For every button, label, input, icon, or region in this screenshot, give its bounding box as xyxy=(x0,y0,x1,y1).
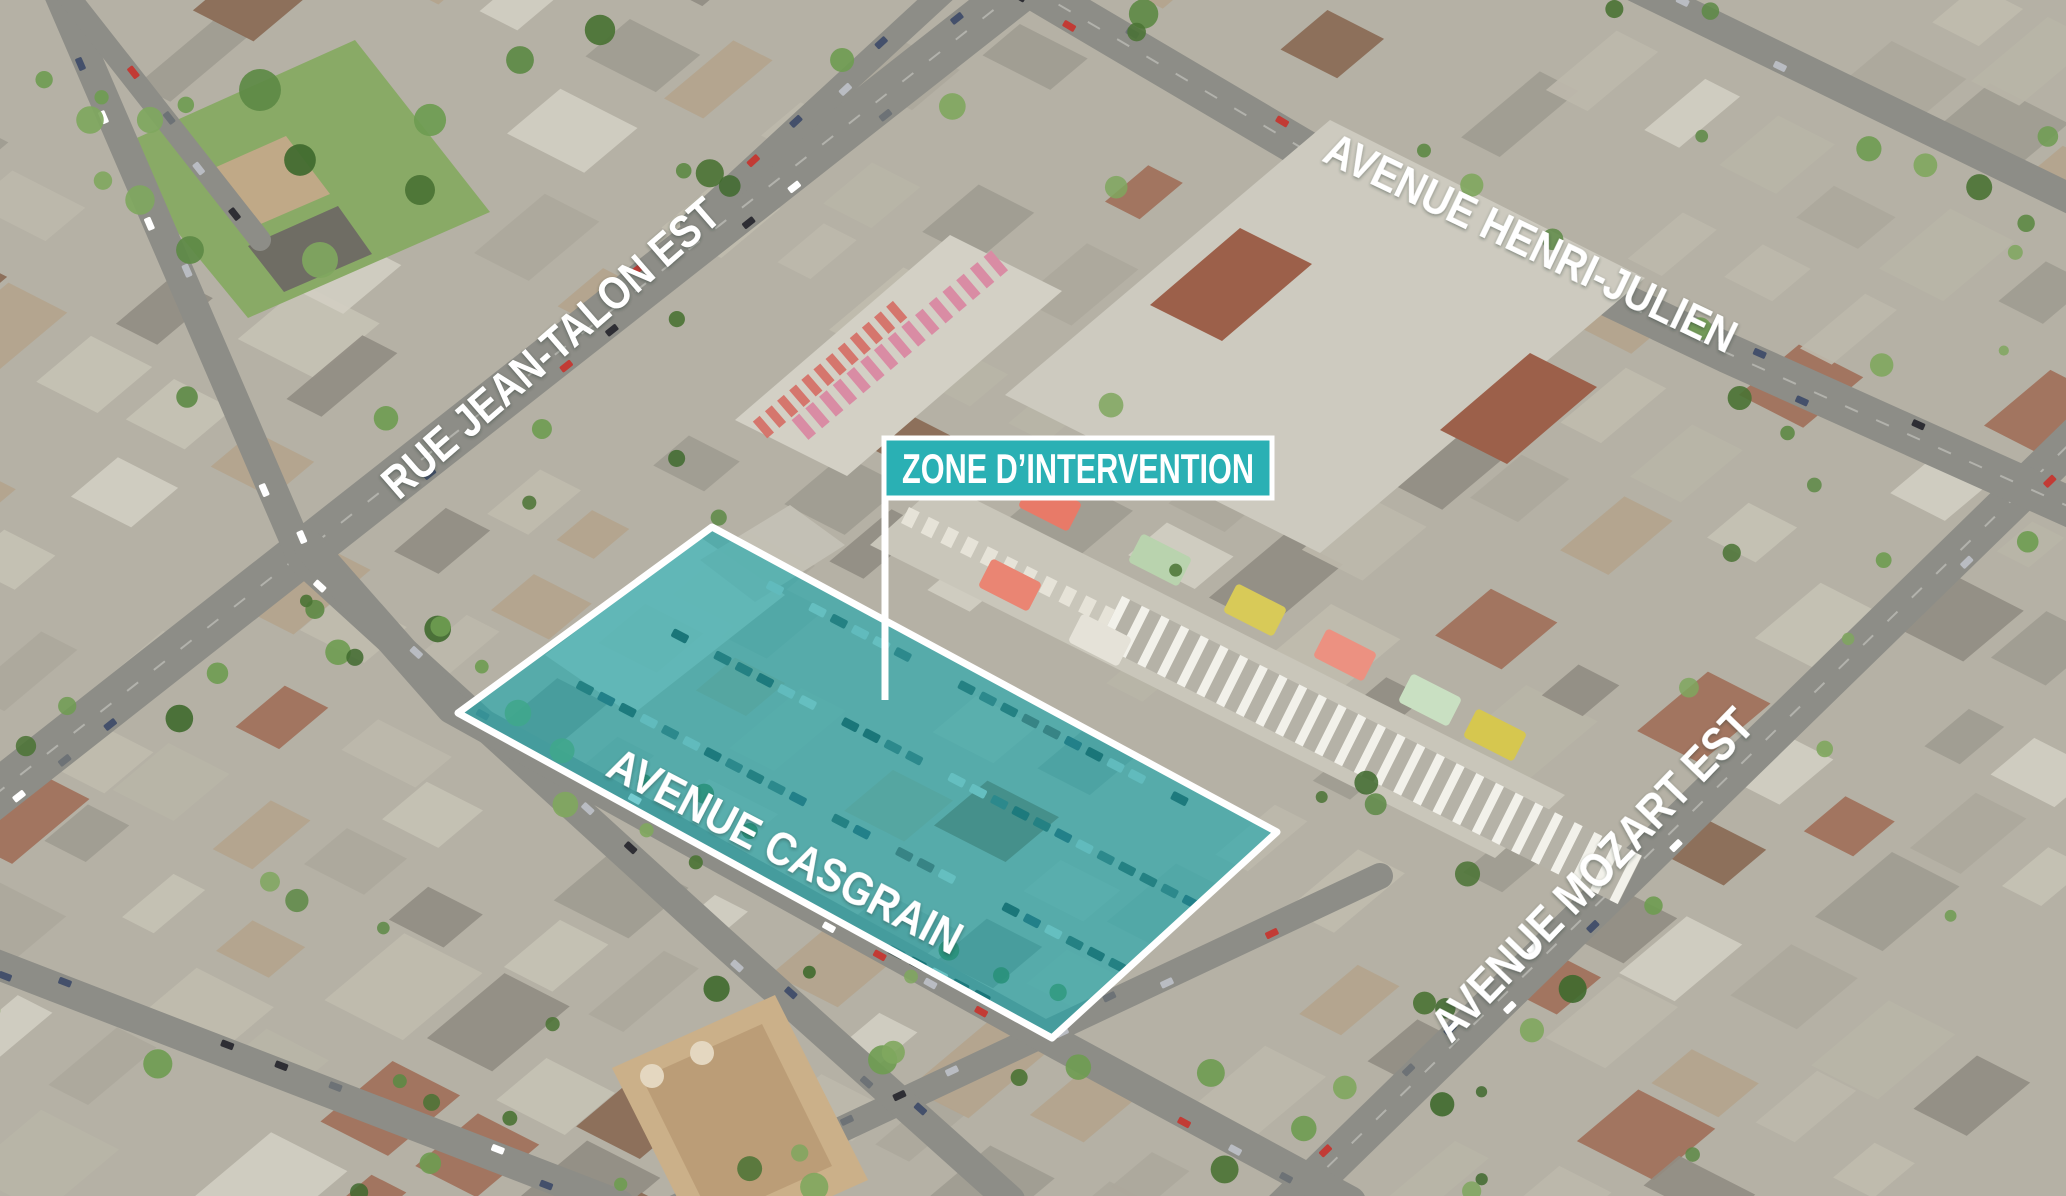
map-canvas: ZONE D’INTERVENTION RUE JEAN-TALON EST A… xyxy=(0,0,2066,1196)
zone-label-box: ZONE D’INTERVENTION xyxy=(884,438,1272,498)
aerial-map: ZONE D’INTERVENTION RUE JEAN-TALON EST A… xyxy=(0,0,2066,1196)
zone-label-text: ZONE D’INTERVENTION xyxy=(902,445,1254,492)
